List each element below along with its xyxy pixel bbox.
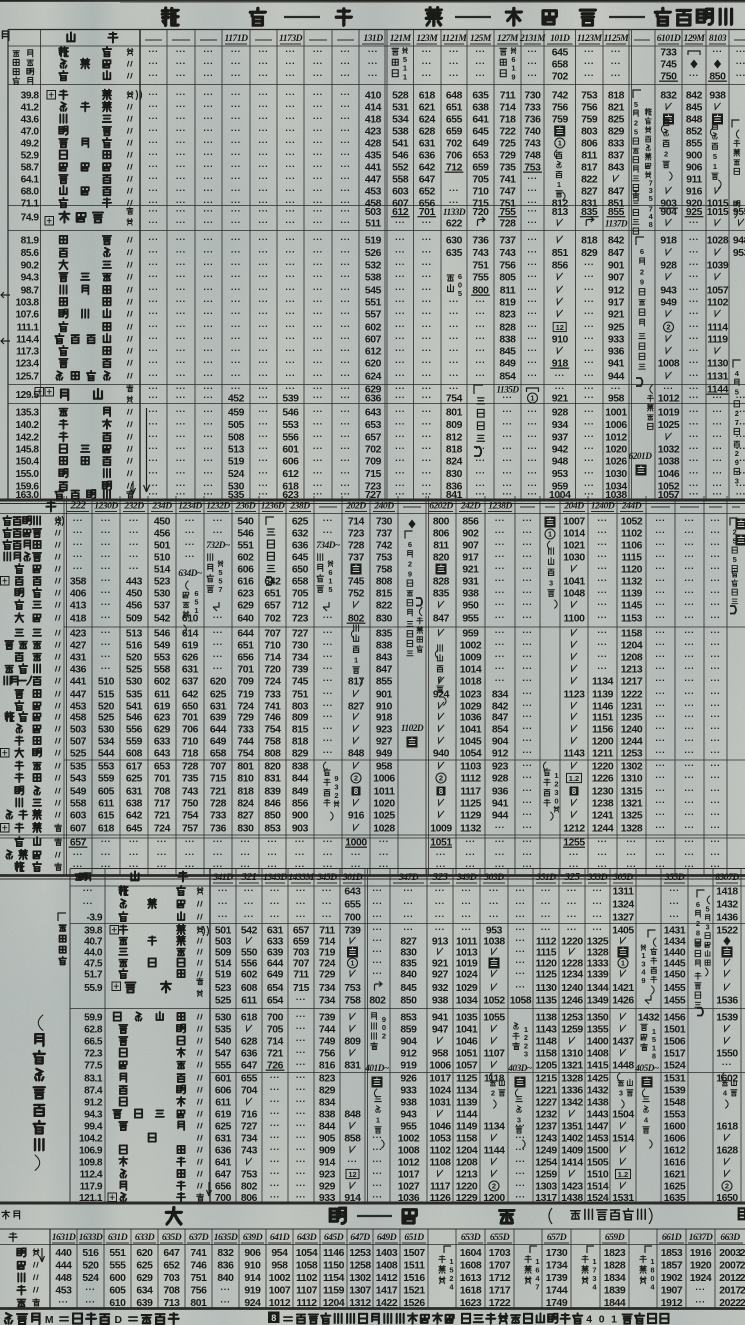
svg-text:···: ···: [495, 588, 505, 598]
svg-text:···: ···: [712, 47, 722, 57]
svg-text:1019: 1019: [456, 959, 478, 970]
svg-text:···: ···: [296, 1145, 306, 1155]
svg-text:551: 551: [237, 541, 254, 552]
svg-text:···: ···: [258, 309, 268, 319]
svg-text:710: 710: [472, 187, 489, 198]
svg-text:453: 453: [55, 1286, 72, 1297]
svg-text:···: ···: [323, 528, 333, 538]
svg-text:958: 958: [432, 1049, 449, 1060]
svg-text:···: ···: [522, 748, 532, 758]
svg-text:555: 555: [109, 1261, 126, 1272]
svg-text:234D: 234D: [151, 501, 172, 512]
svg-text:···: ···: [285, 90, 295, 100]
svg-text:12: 12: [556, 323, 564, 332]
svg-text:···: ···: [258, 322, 268, 332]
svg-text:145.8: 145.8: [16, 445, 40, 456]
svg-text:720: 720: [264, 665, 281, 676]
svg-text:733: 733: [660, 48, 677, 59]
svg-text:659: 659: [472, 163, 489, 174]
svg-text:855: 855: [376, 677, 393, 688]
svg-text:459: 459: [228, 408, 245, 419]
svg-text:959: 959: [462, 629, 479, 640]
svg-text:1013: 1013: [456, 948, 478, 959]
svg-text:1134: 1134: [484, 1122, 506, 1133]
svg-text:6202D: 6202D: [429, 501, 453, 512]
svg-text:···: ···: [285, 206, 295, 216]
svg-text:822: 822: [581, 175, 598, 186]
svg-text:···: ···: [73, 540, 83, 550]
svg-text:···: ···: [313, 322, 323, 332]
svg-text:927: 927: [432, 970, 449, 981]
svg-text:734: 734: [319, 983, 336, 994]
svg-text:···: ···: [527, 247, 537, 257]
svg-text:···: ···: [584, 334, 594, 344]
svg-text:···: ···: [176, 489, 186, 499]
svg-text:2: 2: [334, 791, 338, 800]
svg-text:1613: 1613: [460, 1273, 482, 1284]
svg-text:1015: 1015: [707, 207, 729, 218]
svg-text:···: ···: [522, 640, 532, 650]
svg-text:1006: 1006: [429, 1061, 451, 1072]
svg-text:···: ···: [522, 676, 532, 686]
svg-text:···: ···: [267, 837, 277, 847]
svg-text:···: ···: [422, 444, 432, 454]
svg-text:1029: 1029: [460, 702, 482, 713]
svg-text:···: ···: [475, 489, 485, 499]
svg-text:1171D: 1171D: [224, 33, 248, 44]
svg-text:810: 810: [237, 774, 254, 785]
svg-text:···: ···: [258, 126, 268, 136]
svg-text:913: 913: [432, 937, 449, 948]
svg-text:1220: 1220: [592, 762, 614, 773]
svg-text:···: ···: [258, 468, 268, 478]
svg-text:848: 848: [348, 749, 365, 760]
svg-text:639D: 639D: [243, 1232, 263, 1243]
svg-text:···: ···: [689, 456, 699, 466]
svg-text:···: ···: [340, 162, 350, 172]
svg-text:···: ···: [655, 810, 665, 820]
svg-text:1553: 1553: [664, 1110, 686, 1121]
svg-text:815: 815: [292, 725, 309, 736]
svg-text:···: ···: [449, 371, 459, 381]
svg-text:···: ···: [475, 334, 485, 344]
svg-text:···: ···: [527, 456, 537, 466]
svg-text:916: 916: [348, 811, 365, 822]
svg-text:418: 418: [365, 115, 382, 126]
svg-text:644: 644: [210, 725, 227, 736]
svg-text:···: ···: [313, 218, 323, 228]
svg-text:91.2: 91.2: [84, 1098, 103, 1109]
svg-text:72.3: 72.3: [84, 1049, 103, 1060]
svg-text:···: ···: [231, 309, 241, 319]
svg-text:714: 714: [267, 1037, 284, 1048]
svg-text:642: 642: [182, 690, 199, 701]
svg-text:···: ···: [73, 564, 83, 574]
svg-text:112.4: 112.4: [80, 1170, 103, 1181]
svg-text:743: 743: [241, 1146, 258, 1157]
svg-text:1421: 1421: [612, 983, 634, 994]
svg-text:···: ···: [502, 468, 512, 478]
svg-text:5: 5: [328, 585, 332, 594]
svg-text:1139: 1139: [456, 1098, 478, 1109]
svg-text:···: ···: [422, 71, 432, 81]
svg-text:657: 657: [264, 601, 281, 612]
svg-text:447: 447: [365, 175, 382, 186]
svg-text:8103: 8103: [709, 33, 727, 44]
svg-text:528: 528: [392, 91, 409, 102]
svg-text:···: ···: [313, 272, 323, 282]
svg-text:834: 834: [492, 690, 509, 701]
svg-text:···: ···: [296, 1121, 306, 1131]
svg-text:829: 829: [319, 1086, 336, 1097]
svg-text:···: ···: [584, 71, 594, 81]
svg-text:635: 635: [472, 91, 489, 102]
svg-text:909: 909: [319, 1146, 336, 1157]
svg-text:758: 758: [344, 996, 361, 1007]
svg-text:1107: 1107: [296, 1286, 318, 1297]
svg-text:85.6: 85.6: [21, 248, 40, 259]
svg-text:···: ···: [213, 516, 223, 526]
svg-text:535: 535: [228, 490, 245, 501]
svg-text:642: 642: [419, 163, 436, 174]
svg-text:924: 924: [244, 1298, 261, 1309]
svg-text:···: ···: [296, 1109, 306, 1119]
svg-text:1431: 1431: [664, 926, 686, 937]
svg-text:538: 538: [365, 273, 382, 284]
svg-text:450: 450: [154, 517, 171, 528]
svg-text:···: ···: [203, 358, 213, 368]
svg-text:···: ···: [176, 114, 186, 124]
svg-text:···: ···: [584, 346, 594, 356]
svg-text:5: 5: [713, 152, 717, 161]
svg-text:···: ···: [495, 552, 505, 562]
svg-text:741: 741: [190, 1248, 207, 1259]
svg-text:746: 746: [264, 713, 281, 724]
svg-text:1730: 1730: [546, 1248, 568, 1259]
svg-text:808: 808: [264, 749, 281, 760]
svg-text:655: 655: [344, 900, 361, 911]
svg-text:1602: 1602: [716, 1074, 738, 1085]
svg-text:752: 752: [348, 589, 365, 600]
svg-text:···: ···: [313, 138, 323, 148]
svg-text:···: ···: [689, 285, 699, 295]
svg-text:103.8: 103.8: [16, 298, 40, 309]
svg-text:900: 900: [292, 811, 309, 822]
svg-text:725: 725: [499, 139, 516, 150]
svg-text:818: 818: [446, 445, 463, 456]
svg-text:···: ···: [527, 297, 537, 307]
svg-text:734D~: 734D~: [316, 541, 341, 551]
svg-text:530: 530: [126, 677, 143, 688]
svg-text:1402: 1402: [561, 1134, 583, 1145]
svg-text:540: 540: [215, 1037, 232, 1048]
svg-text:1432: 1432: [638, 1013, 660, 1024]
svg-text:838: 838: [499, 335, 516, 346]
svg-text:···: ···: [270, 1181, 280, 1191]
svg-text:···: ···: [101, 640, 111, 650]
svg-text:···: ···: [340, 358, 350, 368]
svg-text:···: ···: [422, 358, 432, 368]
svg-text:···: ···: [449, 47, 459, 57]
svg-text:948: 948: [733, 236, 745, 247]
svg-text:···: ···: [502, 432, 512, 442]
svg-text:744: 744: [319, 1025, 336, 1036]
svg-text:1244: 1244: [592, 824, 614, 835]
svg-text:···: ···: [515, 947, 525, 957]
svg-text:···: ···: [231, 186, 241, 196]
svg-text:650: 650: [292, 565, 309, 576]
svg-text:736: 736: [210, 824, 227, 835]
svg-text:754: 754: [264, 725, 281, 736]
svg-text:940: 940: [433, 749, 450, 760]
svg-text:1102: 1102: [430, 1146, 452, 1157]
svg-text:843: 843: [376, 653, 393, 664]
svg-text:851: 851: [552, 248, 569, 259]
svg-text:···: ···: [689, 444, 699, 454]
svg-text:633: 633: [267, 937, 284, 948]
svg-text:···: ···: [340, 456, 350, 466]
svg-text:···: ···: [527, 407, 537, 417]
svg-text:···: ···: [689, 247, 699, 257]
svg-text:1907: 1907: [661, 1286, 683, 1297]
svg-text:1438: 1438: [587, 1098, 609, 1109]
svg-text:1154: 1154: [323, 1273, 345, 1284]
svg-text:···: ···: [176, 126, 186, 136]
svg-text:658: 658: [210, 749, 227, 760]
svg-text:1505: 1505: [587, 1158, 609, 1169]
svg-text:···: ···: [296, 886, 306, 896]
svg-text:659D: 659D: [605, 1232, 625, 1243]
svg-text:···: ···: [422, 407, 432, 417]
svg-text:···: ···: [313, 309, 323, 319]
svg-text:933: 933: [608, 335, 625, 346]
svg-text:1531: 1531: [612, 1193, 634, 1204]
svg-text:···: ···: [522, 810, 532, 820]
svg-text:745: 745: [292, 677, 309, 688]
svg-text:644: 644: [267, 959, 284, 970]
svg-text:654: 654: [267, 996, 284, 1007]
svg-text:···: ···: [584, 285, 594, 295]
svg-text:114.4: 114.4: [16, 335, 39, 346]
svg-text:1539: 1539: [664, 1086, 686, 1097]
svg-text:1034: 1034: [456, 996, 478, 1007]
svg-text:631D: 631D: [108, 1232, 128, 1243]
svg-text:···: ···: [422, 247, 432, 257]
svg-text:···: ···: [710, 748, 720, 758]
svg-text:···: ···: [502, 456, 512, 466]
svg-text:···: ···: [313, 358, 323, 368]
svg-text:···: ···: [258, 285, 268, 295]
svg-text:···: ···: [203, 138, 213, 148]
svg-text:1635D: 1635D: [214, 1232, 238, 1243]
svg-text:···: ···: [340, 102, 350, 112]
svg-text:1241: 1241: [592, 811, 614, 822]
svg-text:1: 1: [376, 1115, 380, 1124]
svg-text:···: ···: [515, 886, 525, 896]
svg-text:···: ···: [313, 206, 323, 216]
svg-text:612: 612: [365, 347, 382, 358]
svg-text:1028: 1028: [707, 236, 729, 247]
svg-text:1834: 1834: [604, 1273, 626, 1284]
svg-text:155.0: 155.0: [16, 469, 40, 480]
svg-text:···: ···: [258, 407, 268, 417]
svg-text:···: ···: [684, 798, 694, 808]
svg-text:···: ···: [285, 102, 295, 112]
svg-text:···: ···: [258, 456, 268, 466]
svg-text:1017: 1017: [398, 1170, 420, 1181]
svg-text:···: ···: [597, 528, 607, 538]
svg-text:1456: 1456: [664, 1013, 686, 1024]
svg-text:···: ···: [285, 260, 295, 270]
svg-text:456: 456: [126, 601, 143, 612]
svg-text:907: 907: [608, 273, 625, 284]
svg-text:1616: 1616: [664, 1158, 686, 1169]
svg-text:···: ···: [710, 528, 720, 538]
svg-text:···: ···: [597, 576, 607, 586]
svg-text:···: ···: [584, 444, 594, 454]
svg-text:405D~: 405D~: [634, 1064, 660, 1074]
svg-text:6: 6: [408, 540, 412, 549]
svg-text:623: 623: [237, 589, 254, 600]
svg-text:9: 9: [641, 976, 645, 985]
svg-text:···: ···: [403, 925, 413, 935]
svg-text:829: 829: [581, 248, 598, 259]
svg-text:···: ···: [323, 628, 333, 638]
svg-text:1228: 1228: [561, 959, 583, 970]
svg-text:···: ···: [185, 528, 195, 538]
svg-text:1436: 1436: [716, 913, 738, 924]
svg-text:719: 719: [319, 948, 336, 959]
svg-text:8: 8: [572, 787, 577, 796]
svg-text:748: 748: [524, 151, 541, 162]
svg-text:···: ···: [285, 174, 295, 184]
svg-text:626: 626: [182, 653, 199, 664]
svg-text:801: 801: [190, 1298, 207, 1309]
svg-text:954: 954: [271, 1248, 288, 1259]
svg-text:700: 700: [344, 913, 361, 924]
svg-text:1312: 1312: [349, 1298, 371, 1309]
svg-text:···: ···: [689, 272, 699, 282]
svg-text:···: ···: [395, 285, 405, 295]
svg-text:···: ···: [669, 912, 679, 922]
svg-text:1208: 1208: [456, 1158, 478, 1169]
svg-text:···: ···: [258, 162, 268, 172]
svg-text:620: 620: [136, 1248, 153, 1259]
svg-text:701: 701: [154, 774, 171, 785]
svg-text:1048: 1048: [563, 589, 585, 600]
svg-text:5: 5: [634, 100, 638, 109]
svg-text:···: ···: [323, 712, 333, 722]
svg-text:1014: 1014: [563, 529, 585, 540]
svg-text:···: ···: [527, 47, 537, 57]
svg-text:625: 625: [215, 1122, 232, 1133]
svg-text:···: ···: [340, 432, 350, 442]
svg-text:···: ···: [203, 174, 213, 184]
svg-text:-3.9: -3.9: [86, 913, 102, 924]
svg-text:910: 910: [376, 702, 393, 713]
svg-text:···: ···: [710, 761, 720, 771]
svg-text:···: ···: [502, 489, 512, 499]
svg-text:516: 516: [126, 641, 143, 652]
svg-text:704: 704: [241, 1086, 258, 1097]
svg-text:938: 938: [400, 1098, 417, 1109]
svg-text:···: ···: [176, 102, 186, 112]
svg-text:700: 700: [215, 1193, 232, 1204]
svg-text:···: ···: [340, 346, 350, 356]
svg-text:1506: 1506: [664, 1037, 686, 1048]
svg-text:1046: 1046: [429, 1122, 451, 1133]
svg-text:534: 534: [392, 115, 409, 126]
svg-text:···: ···: [340, 206, 350, 216]
svg-text:···: ···: [176, 322, 186, 332]
svg-text:1437: 1437: [612, 1037, 634, 1048]
svg-text:647: 647: [241, 1061, 258, 1072]
svg-text:941: 941: [432, 1013, 449, 1024]
svg-text:···: ···: [422, 432, 432, 442]
svg-text:622: 622: [446, 219, 463, 230]
svg-text:···: ···: [203, 334, 213, 344]
svg-text:···: ···: [684, 613, 694, 623]
svg-text:1120: 1120: [621, 565, 643, 576]
svg-text:645D: 645D: [324, 1232, 344, 1243]
svg-text:1107: 1107: [484, 1049, 506, 1060]
svg-text:721: 721: [210, 787, 227, 798]
svg-text:···: ···: [258, 59, 268, 69]
svg-text:1311: 1311: [613, 887, 635, 898]
svg-text:441: 441: [70, 677, 87, 688]
svg-text:910: 910: [244, 1261, 261, 1272]
svg-text:737: 737: [348, 553, 365, 564]
svg-text:117.3: 117.3: [16, 347, 39, 358]
svg-text:1349: 1349: [587, 996, 609, 1007]
svg-text:607: 607: [365, 335, 382, 346]
svg-text:···: ···: [296, 995, 306, 1005]
svg-text:···: ···: [395, 334, 405, 344]
svg-text:···: ···: [527, 285, 537, 295]
svg-text:724: 724: [264, 677, 281, 688]
svg-text:1717: 1717: [489, 1286, 511, 1297]
svg-text:···: ···: [435, 925, 445, 935]
svg-text:1606: 1606: [664, 1134, 686, 1145]
svg-text:···: ···: [296, 1169, 306, 1179]
svg-text:···: ···: [502, 407, 512, 417]
svg-text:···: ···: [475, 47, 485, 57]
svg-text:914: 914: [319, 1158, 336, 1169]
svg-text:901: 901: [376, 690, 393, 701]
svg-text:1055: 1055: [483, 1013, 505, 1024]
svg-text:753: 753: [241, 1170, 258, 1181]
svg-text:···: ···: [684, 837, 694, 847]
svg-text:1618: 1618: [716, 1122, 738, 1133]
svg-text:···: ···: [689, 260, 699, 270]
svg-text:204D: 204D: [563, 501, 584, 512]
svg-text:···: ···: [203, 371, 213, 381]
svg-text:1032: 1032: [658, 445, 680, 456]
svg-text:···: ···: [655, 850, 665, 860]
svg-text:631: 631: [215, 1134, 232, 1145]
svg-text:···: ···: [527, 71, 537, 81]
svg-text:859: 859: [400, 1025, 417, 1036]
svg-text:625: 625: [210, 690, 227, 701]
svg-text:···: ···: [379, 862, 389, 872]
svg-text:706: 706: [446, 151, 463, 162]
svg-text:614: 614: [182, 629, 199, 640]
svg-text:···: ···: [323, 701, 333, 711]
svg-text:···: ···: [285, 358, 295, 368]
svg-text:1006: 1006: [605, 420, 627, 431]
svg-text:···: ···: [395, 272, 405, 282]
svg-text:···: ···: [626, 850, 636, 860]
